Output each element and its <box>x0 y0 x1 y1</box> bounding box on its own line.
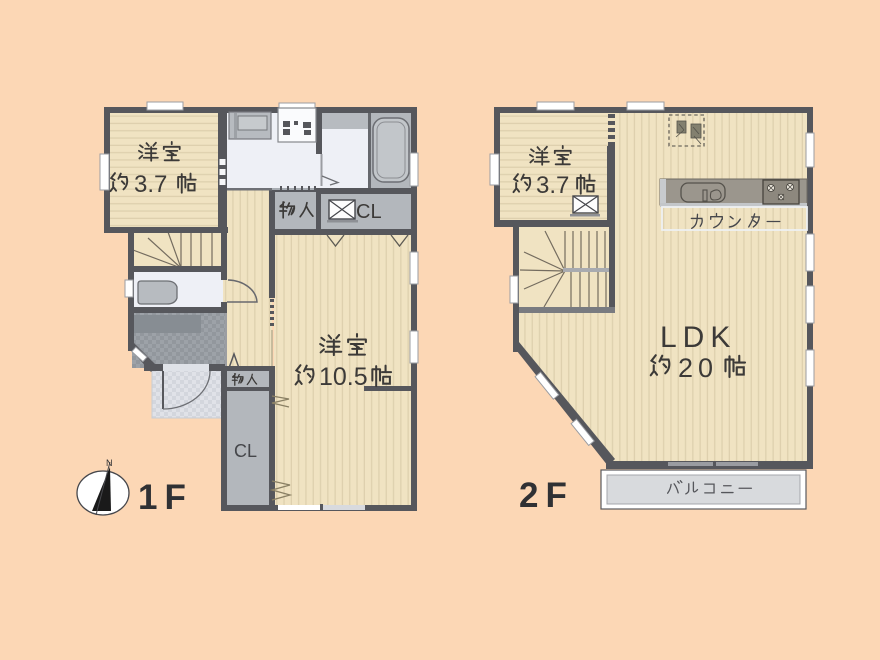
svg-text:CL: CL <box>356 201 382 223</box>
svg-text:3.7: 3.7 <box>134 171 167 198</box>
svg-text:2F: 2F <box>519 476 574 515</box>
svg-text:3.7: 3.7 <box>536 172 569 199</box>
svg-text:10.5: 10.5 <box>319 363 368 391</box>
svg-text:N: N <box>106 458 113 468</box>
svg-text:1F: 1F <box>138 478 193 517</box>
svg-text:20: 20 <box>678 353 718 383</box>
svg-text:CL: CL <box>234 441 257 461</box>
svg-text:LDK: LDK <box>660 321 736 354</box>
